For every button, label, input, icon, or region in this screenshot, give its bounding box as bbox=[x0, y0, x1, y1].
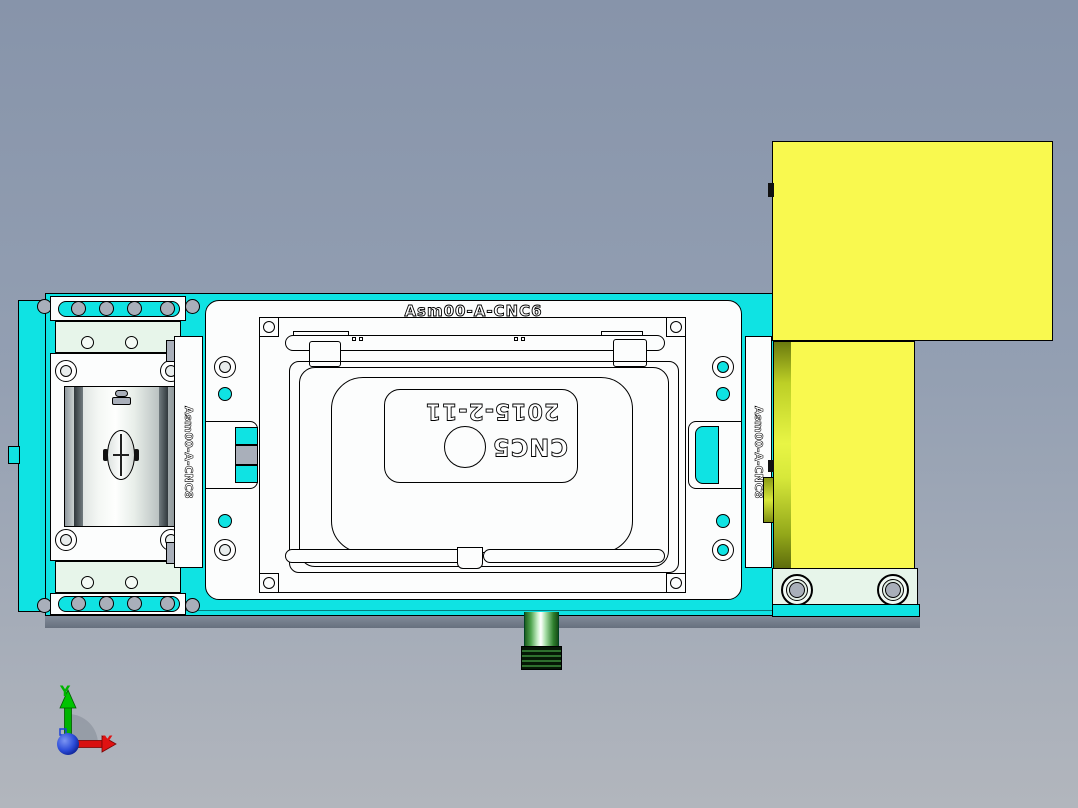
roller-end-bottom-right bbox=[185, 598, 200, 613]
cad-viewport[interactable]: Asm00-A-CNC8 Asm00-A-CNC6 bbox=[0, 0, 1078, 808]
nest-dot bbox=[352, 337, 356, 341]
nest-dot bbox=[514, 337, 518, 341]
locating-pin bbox=[716, 514, 730, 528]
machine-marking: CNC5 bbox=[492, 433, 568, 461]
x-axis-label[interactable]: X bbox=[102, 734, 113, 750]
axis-triad-svg bbox=[30, 678, 140, 773]
y-axis-label[interactable]: Y bbox=[60, 684, 70, 700]
roller bbox=[71, 301, 86, 316]
roller-end-top-right bbox=[185, 299, 200, 314]
machine-marking-row: CNC5 bbox=[444, 426, 568, 468]
date-marking: 2015-2-11 bbox=[425, 398, 559, 423]
roller bbox=[99, 596, 114, 611]
green-plug-body[interactable] bbox=[524, 612, 559, 647]
locating-pin bbox=[218, 514, 232, 528]
clamp-block[interactable] bbox=[235, 445, 258, 465]
knob-notch-left bbox=[103, 449, 108, 461]
counterbore-hole-inner bbox=[60, 365, 72, 377]
yellow-block-small[interactable] bbox=[773, 341, 915, 569]
clamp-block[interactable] bbox=[235, 465, 258, 483]
yellow-side-tab bbox=[763, 477, 774, 523]
counterbore-hole-inner bbox=[717, 544, 729, 556]
roller bbox=[127, 596, 142, 611]
counterbore-hole-inner bbox=[219, 544, 231, 556]
engraving-group: CNC5 2015-2-11 bbox=[385, 390, 577, 482]
knob-notch-right bbox=[134, 449, 139, 461]
nest-corner-screw bbox=[666, 317, 686, 337]
hole bbox=[81, 576, 94, 589]
side-plate-right-label: Asm00-A-CNC8 bbox=[746, 337, 771, 567]
nest-corner-screw bbox=[259, 573, 279, 593]
nest-bottom-notch bbox=[457, 547, 483, 569]
origin-sphere[interactable] bbox=[57, 733, 79, 755]
roller bbox=[99, 301, 114, 316]
set-screw-cap bbox=[115, 390, 128, 397]
nest-bottom-slot bbox=[285, 549, 467, 563]
side-plate-left[interactable]: Asm00-A-CNC8 bbox=[174, 336, 203, 568]
base-end-plate[interactable] bbox=[18, 300, 46, 612]
base-strip-right bbox=[772, 604, 920, 617]
side-plate-right[interactable]: Asm00-A-CNC8 bbox=[745, 336, 772, 568]
roller bbox=[71, 596, 86, 611]
hole bbox=[125, 576, 138, 589]
roller bbox=[160, 596, 175, 611]
clamp-block[interactable] bbox=[695, 426, 719, 484]
engraved-label-plate[interactable]: CNC5 2015-2-11 bbox=[384, 389, 578, 483]
counterbore-hole-inner bbox=[717, 361, 729, 373]
engraved-hole bbox=[444, 426, 486, 468]
clamp-block[interactable] bbox=[235, 427, 258, 445]
yellow-block-large[interactable] bbox=[772, 141, 1053, 341]
roller bbox=[127, 301, 142, 316]
roller bbox=[160, 301, 175, 316]
locating-pin bbox=[716, 387, 730, 401]
green-plug-threads bbox=[521, 646, 562, 670]
hole bbox=[125, 336, 138, 349]
spacer-block-top bbox=[55, 321, 181, 353]
base-end-tab bbox=[8, 446, 20, 464]
axis-triad[interactable]: Y X bbox=[30, 678, 140, 773]
yellow-block-mark bbox=[768, 460, 774, 472]
locating-pin bbox=[218, 387, 232, 401]
cylinder-band-right bbox=[159, 387, 168, 526]
counterbore-hole-inner bbox=[60, 534, 72, 546]
side-plate-left-label: Asm00-A-CNC8 bbox=[175, 337, 202, 567]
nest-top-slot bbox=[285, 335, 665, 351]
nest-dot bbox=[521, 337, 525, 341]
yellow-block-edge-highlight bbox=[774, 342, 791, 568]
hole bbox=[81, 336, 94, 349]
cylinder-band-left bbox=[74, 387, 83, 526]
nest-corner-screw bbox=[259, 317, 279, 337]
set-screw bbox=[112, 397, 131, 405]
nest-bottom-slot bbox=[483, 549, 665, 563]
main-fixture-plate[interactable]: Asm00-A-CNC6 bbox=[205, 300, 742, 600]
bolt-head bbox=[789, 582, 805, 598]
yellow-block-mark bbox=[768, 183, 774, 197]
bolt-head bbox=[885, 582, 901, 598]
nest-dot bbox=[359, 337, 363, 341]
knob-cross-h bbox=[113, 454, 129, 456]
counterbore-hole-inner bbox=[219, 361, 231, 373]
spacer-block-bottom bbox=[55, 561, 181, 593]
nest-corner-screw bbox=[666, 573, 686, 593]
